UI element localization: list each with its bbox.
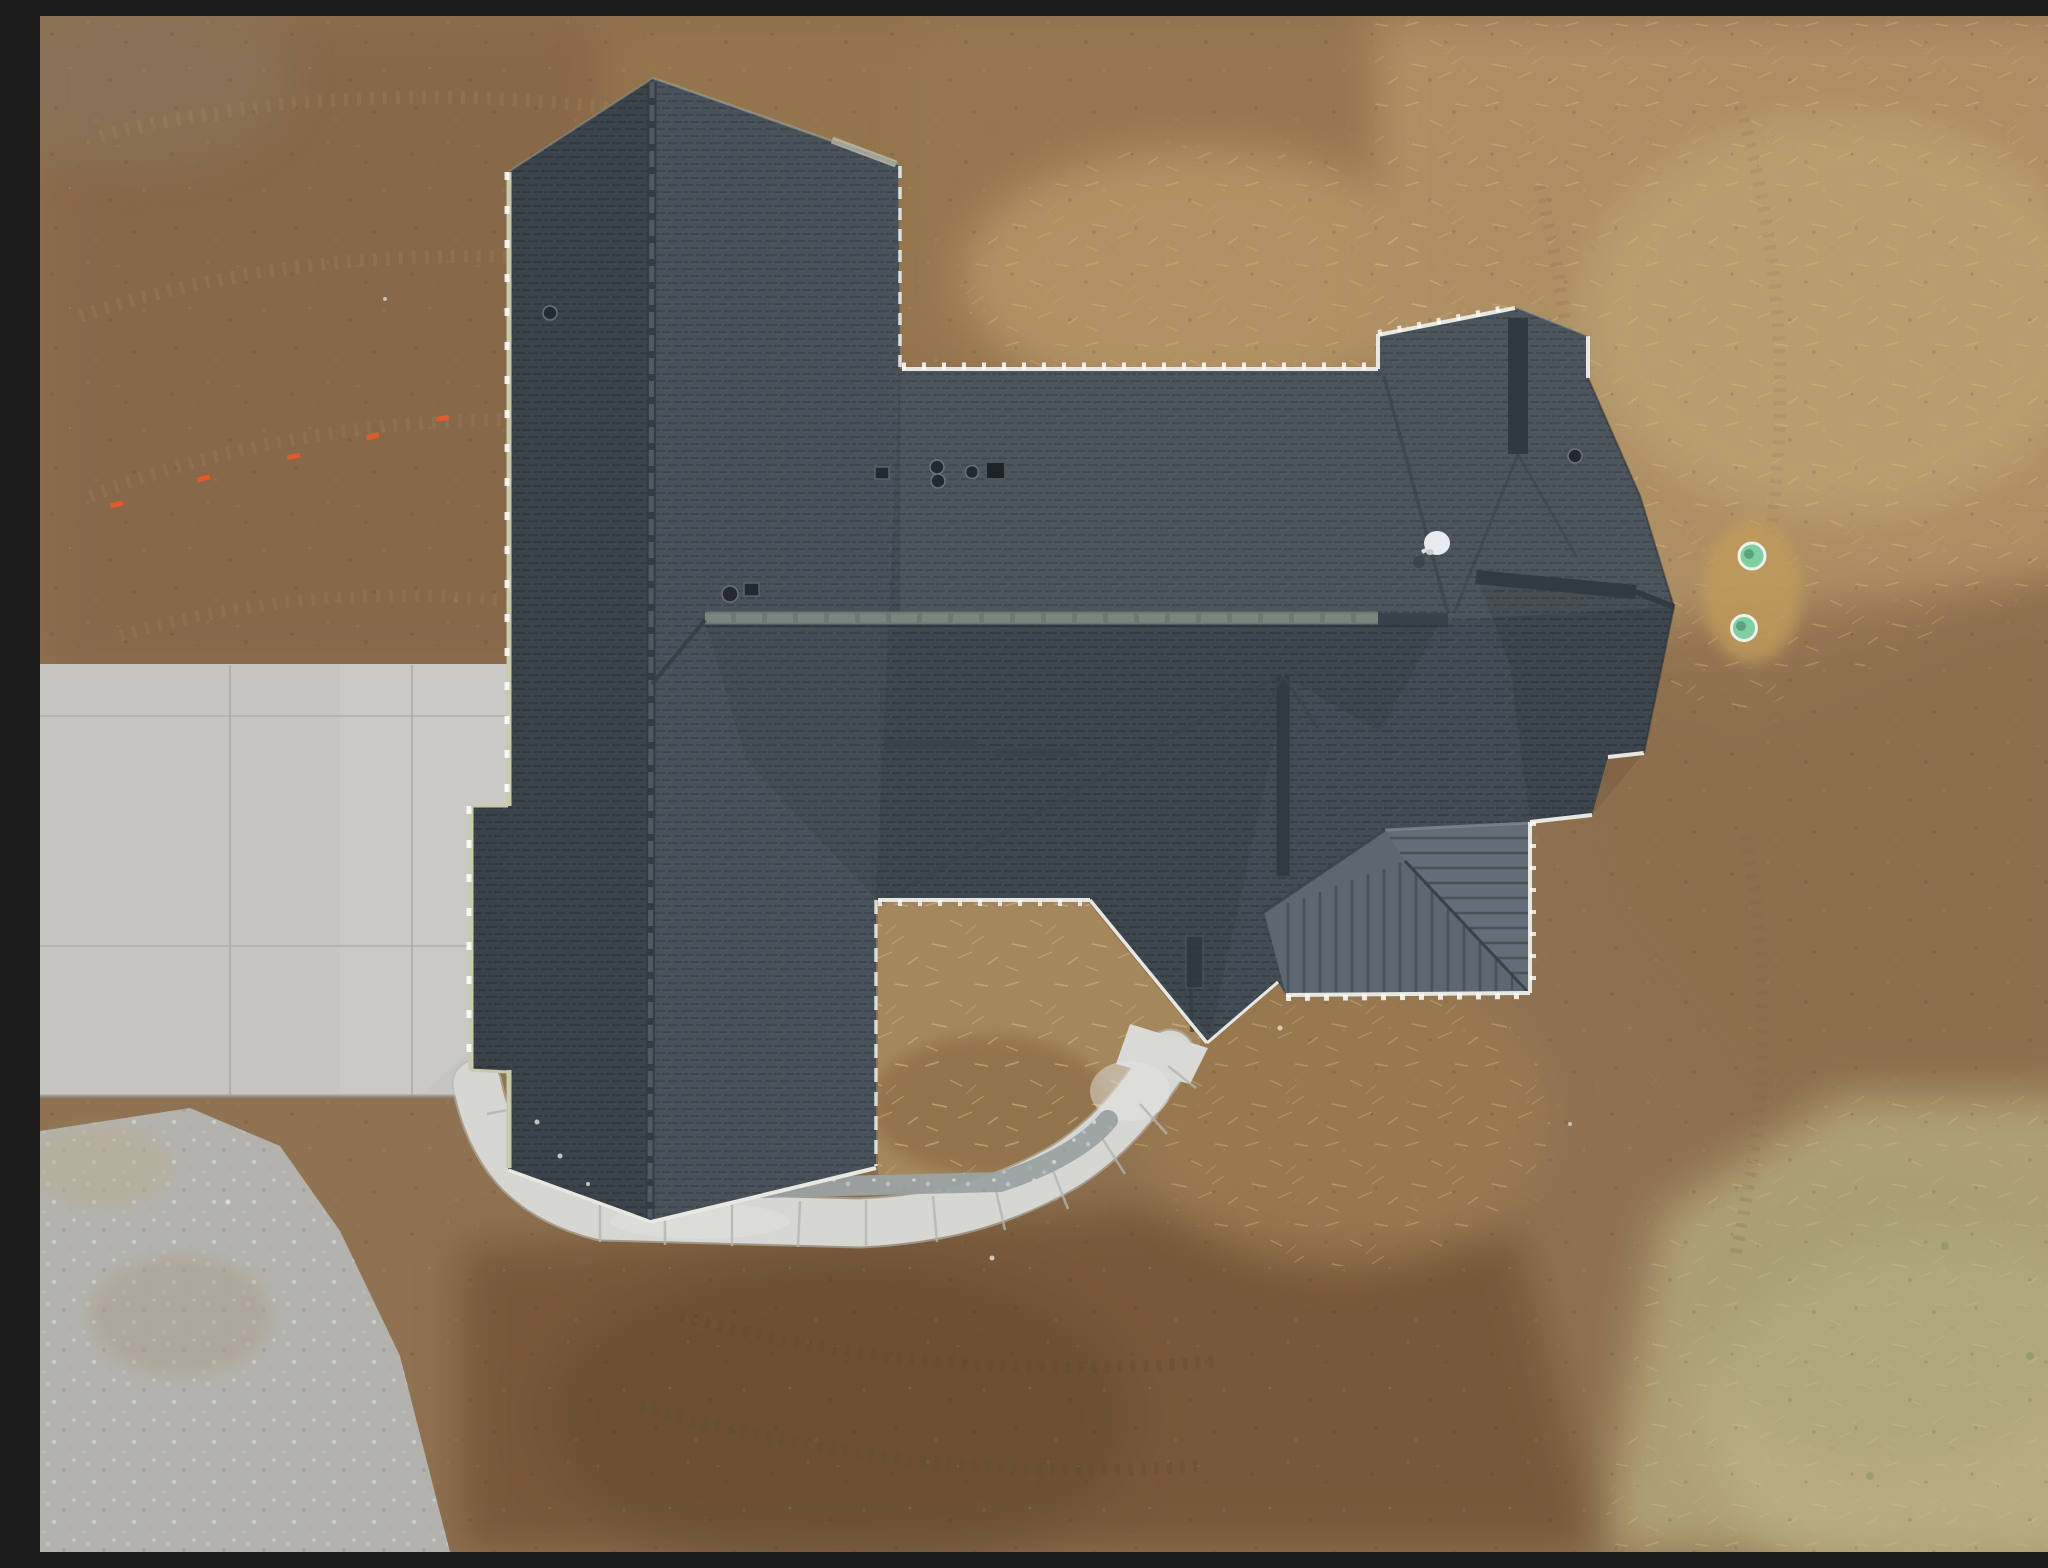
roof-vent-strip-south-2 (995, 749, 1077, 757)
grass-tuft-2 (2026, 1352, 2034, 1360)
satellite-dish-feed (1426, 549, 1434, 555)
roof-vent-round-north-1 (930, 460, 944, 474)
northeast-gable-ridge-vent (1508, 318, 1528, 454)
roof-vent-square-mid (744, 583, 759, 596)
satellite-dish-shadow (1413, 556, 1425, 568)
roof-vent-square-north-1 (875, 467, 889, 479)
gutter-porch-south-eave (1286, 993, 1530, 995)
grass-tuft-3 (1866, 1472, 1874, 1480)
debris-speck-7 (1568, 1122, 1572, 1126)
fascia-bumpout-bottom (471, 1070, 508, 1072)
debris-speck-8 (383, 297, 387, 301)
utility-lid-green-2-mark (1736, 621, 1746, 631)
debris-speck-6 (226, 1200, 231, 1205)
roof-vent-round-north-3 (966, 466, 979, 479)
utility-mound (1702, 519, 1802, 663)
roof-plane-west-slope-shade (508, 78, 653, 1220)
front-gable-vent-chase (1186, 936, 1203, 988)
rough-gravel-tan-blotch-1 (90, 1256, 270, 1376)
utility-lid-green-1-mark (1744, 549, 1754, 559)
debris-speck-2 (558, 1154, 563, 1159)
roof-bumpout-shade (470, 806, 508, 1070)
debris-speck-1 (535, 1120, 540, 1125)
roof-vent-round-mid (722, 586, 738, 602)
roof-vent-round-north-2 (931, 474, 945, 488)
roof-vent-round-west-slope (543, 306, 557, 320)
grass-tuft-1 (1941, 1242, 1949, 1250)
debris-speck-5 (990, 1256, 995, 1261)
roof-vent-round-east-gable (1568, 449, 1582, 463)
aerial-drone-photo-construction-site (40, 16, 2048, 1552)
roof-vent-strip-south-1 (885, 740, 977, 749)
scene-layers (40, 16, 2048, 1552)
debris-speck-4 (1278, 1026, 1283, 1031)
roof-vent-box-north (986, 462, 1005, 479)
debris-speck-3 (586, 1182, 590, 1186)
aerial-photo-canvas (40, 16, 2048, 1552)
